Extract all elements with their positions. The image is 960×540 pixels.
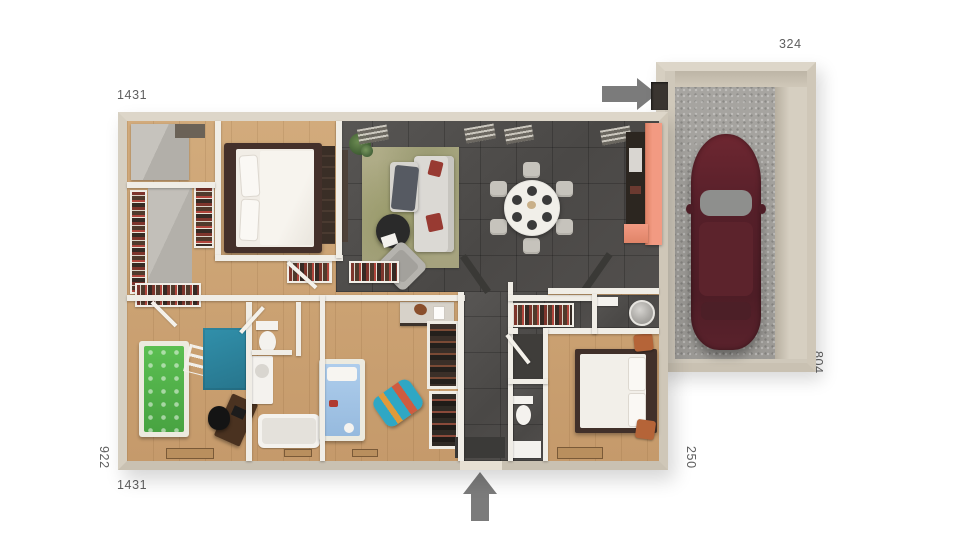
sink-basin [255,364,269,378]
bathtub [258,414,320,448]
garage-side-wall-face [775,87,807,359]
storage-shelf [175,124,205,138]
door-threshold [166,448,214,459]
dining-chair [490,219,507,235]
pillow [239,154,261,197]
wall [458,292,464,461]
car-mirror-left [686,204,694,214]
wall [127,295,465,301]
wall [508,328,518,334]
picture-frame [433,306,445,320]
kitchen-counter-accent [624,224,648,243]
wall [296,302,301,356]
entrance-threshold [460,461,502,470]
bathtub-inner [262,418,316,444]
arrow-head [463,472,497,494]
kitchen-appliance [629,148,642,172]
plate [527,220,537,230]
dining-chair [523,162,540,178]
wall [215,255,343,261]
wall [336,121,342,258]
closet-shelf [349,261,399,283]
dim-left-height-label: 922 [97,446,110,469]
plush-toy [344,423,354,433]
laptop [231,405,247,419]
dim-garage-width-label: 324 [779,38,802,51]
plate [542,195,552,205]
dim-entry-width-label: 250 [684,446,697,469]
house [118,112,668,470]
car-roof [699,222,753,296]
wall [543,328,548,461]
pouf [633,333,654,352]
plate [512,195,522,205]
door-threshold [557,447,603,459]
dining-chair [556,181,573,197]
wall [215,121,221,258]
kids-bed-green [144,346,184,432]
wall [508,379,548,384]
table-centerpiece [527,201,536,209]
wall [545,328,659,334]
sofa-throw-blanket [391,165,419,211]
plate [512,212,522,222]
plant [361,145,373,157]
teal-rug [203,328,247,390]
door-threshold [352,449,378,457]
garage [656,62,816,372]
dim-bottom-width-label: 1431 [117,479,147,492]
laundry-sink [596,297,618,306]
arrow-shaft [471,493,489,521]
door-threshold [284,449,312,457]
kitchen-counter-accent [646,123,662,245]
wall [127,182,215,188]
wall [548,288,659,294]
pillow [628,357,646,391]
toilet-tank [256,321,278,330]
dressing-wardrobe [148,188,192,296]
shoe-shelf [427,321,459,389]
pillow [239,199,260,242]
wall [320,295,325,461]
dim-top-width-label: 1431 [117,89,147,102]
dining-chair [523,238,540,254]
wall [508,282,513,461]
pouf [635,419,656,440]
kitchen-cabinet [626,132,646,224]
car [691,134,761,350]
dining-chair [556,219,573,235]
pillow [327,367,357,381]
wc-shelf [511,441,541,458]
car-mirror-right [758,204,766,214]
desk-chair [208,406,230,430]
car-windshield [700,190,752,216]
wall [508,295,592,301]
car-rear-window [701,302,751,320]
duvet [260,151,314,245]
dining-chair [490,181,507,197]
red-cushion [425,213,443,233]
kitchen-item [630,186,641,194]
bathroom-vanity [251,356,273,404]
floorplan-canvas: 1431 324 922 1431 250 804 [0,0,960,540]
arrow-shaft [602,86,638,102]
washing-machine [629,300,655,326]
wall [592,294,597,334]
toilet-bowl [516,405,531,425]
hall-bookshelf [512,303,574,327]
toilet-tank [513,396,533,404]
dressing-shelf [194,186,214,248]
dressing-shelf [130,190,147,294]
garage-doorway [651,82,668,110]
master-wardrobe [513,334,543,379]
plate [542,212,552,222]
red-toy [329,400,338,407]
wall [252,350,292,355]
plate [527,186,537,196]
bedroom-wardrobe [322,146,335,244]
